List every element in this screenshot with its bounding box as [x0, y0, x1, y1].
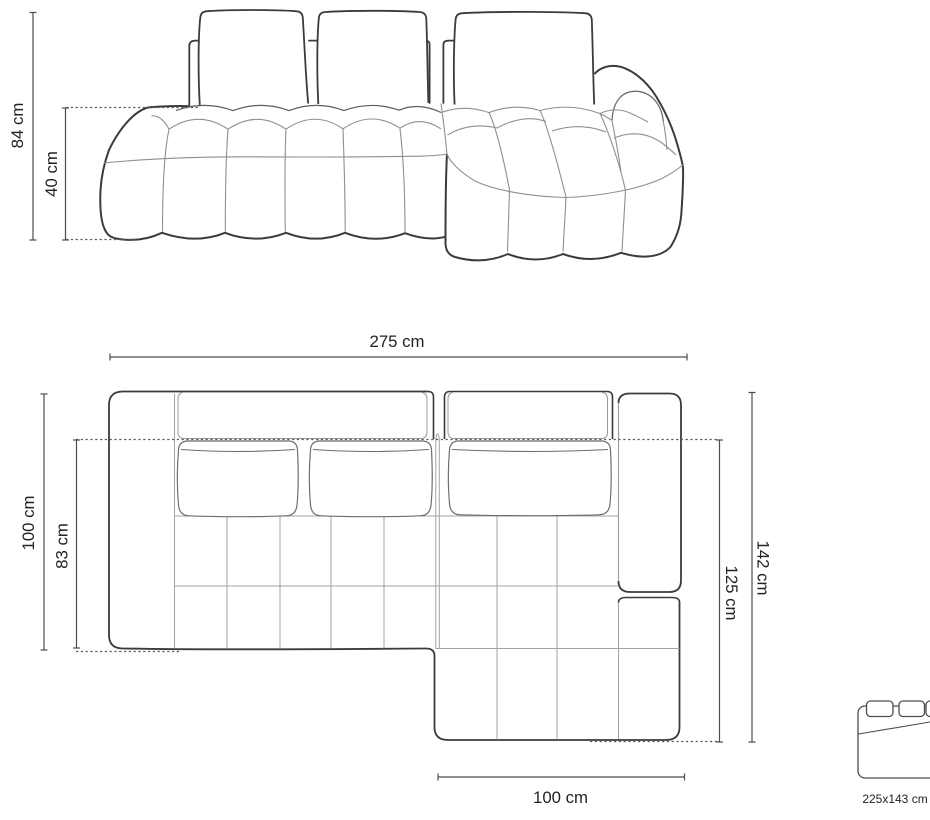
svg-text:125 cm: 125 cm: [722, 565, 741, 620]
svg-text:83 cm: 83 cm: [52, 523, 71, 569]
svg-text:40 cm: 40 cm: [42, 151, 61, 197]
svg-text:275 cm: 275 cm: [369, 332, 424, 351]
svg-text:225x143 cm: 225x143 cm: [862, 792, 927, 806]
svg-text:84 cm: 84 cm: [8, 103, 27, 149]
svg-text:100 cm: 100 cm: [533, 788, 588, 807]
svg-text:142 cm: 142 cm: [754, 540, 773, 595]
svg-text:100 cm: 100 cm: [19, 495, 38, 550]
